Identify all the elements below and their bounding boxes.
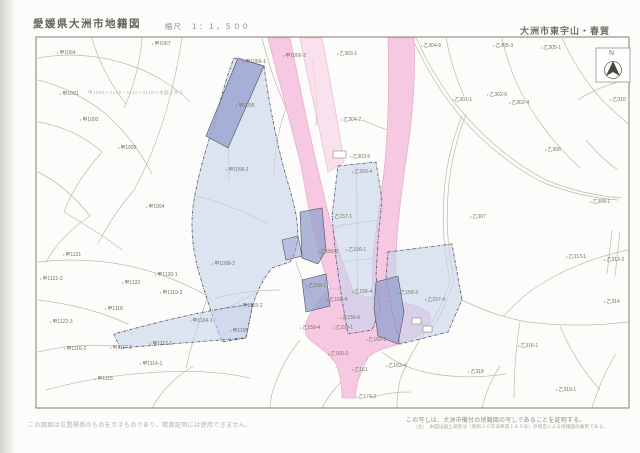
- parcel-label: 甲1094: [146, 204, 165, 210]
- parcel-label: 甲1120-1: [155, 272, 178, 278]
- parcel-label: 甲1116-2: [64, 346, 86, 352]
- north-label: N: [609, 50, 614, 57]
- parcel-label: 甲1121-2: [40, 276, 63, 282]
- blue-parcel-west-arm: [114, 304, 252, 348]
- parcel-label: 乙308-1: [590, 199, 610, 205]
- parcel-label: 乙314: [604, 299, 620, 305]
- parcel-label: 乙163-4: [386, 363, 406, 369]
- parcel-label: 乙156-6: [340, 315, 360, 321]
- disclaimer-text: この図面は位置関係のものを示すものであり、精度証明には使用できません。: [28, 420, 252, 429]
- parcel-label: 乙158-3: [398, 290, 418, 296]
- certification-fine-print: （注） 本図は国土調査法（昭和２６年法律第１８０号）の規定による地籍図の複製であ…: [413, 424, 608, 430]
- parcel-label: 甲1066-2: [283, 53, 306, 59]
- parcel-label: 乙157-4: [425, 297, 445, 303]
- parcel-label: 乙161: [352, 367, 368, 373]
- parcel-label: 乙313-2: [604, 257, 624, 263]
- parcel-label: 乙304-6: [421, 43, 441, 49]
- parcel-label: 乙302-4: [509, 100, 529, 106]
- parcel-label: 乙156-2: [318, 249, 338, 255]
- dark-parcel-center-upper: [300, 208, 326, 264]
- parcel-label: 乙174-2: [356, 394, 376, 400]
- dark-parcel-small: [282, 236, 302, 260]
- parcel-label: 乙316-1: [518, 343, 538, 349]
- parcel-label: 乙156-1: [346, 247, 366, 253]
- parcel-label: 甲1115: [95, 376, 113, 382]
- parcel-label: 甲1117-2: [110, 345, 132, 351]
- parcel-label: 乙159-4: [300, 325, 320, 331]
- parcel-label: 乙306: [545, 147, 561, 153]
- parcel-label: 乙158-1: [306, 283, 326, 289]
- parcel-label: 甲1095: [236, 103, 255, 109]
- parcel-label: 甲1122-3: [50, 319, 73, 325]
- parcel-label: 甲1103-2: [240, 303, 263, 309]
- parcel-label: 乙302-6: [487, 92, 507, 98]
- parcel-label: 乙310: [610, 97, 626, 103]
- parcel-label: 甲1121: [63, 252, 81, 258]
- parcel-label: 甲1091: [60, 91, 79, 97]
- parcel-label: 甲1118: [105, 306, 123, 312]
- parcel-label: 甲1092: [80, 117, 99, 123]
- parcel-label: 甲1117-1: [150, 341, 172, 347]
- parcel-label: 甲1067: [152, 41, 171, 47]
- parcel-label: 甲1104-1: [190, 318, 213, 324]
- parcel-label: 乙157-1: [332, 214, 352, 220]
- parcel-label: 乙313-1: [566, 254, 586, 260]
- parcel-label: 乙159-1: [333, 325, 353, 331]
- dark-parcel-center-lower: [302, 274, 330, 312]
- parcel-label: 甲1105: [230, 328, 248, 334]
- parcel-label: 甲1114-1: [140, 361, 162, 367]
- parcel-label: 乙303-1: [337, 51, 357, 57]
- parcel-label: 乙318: [468, 369, 484, 375]
- parcel-label: 甲1066-1: [243, 59, 266, 65]
- parcel-label: 乙319-1: [556, 387, 576, 393]
- parcel-label: 乙305-3: [493, 43, 513, 49]
- parcel-label: 甲1122: [122, 280, 140, 286]
- parcel-label: 甲1098-2: [212, 261, 235, 267]
- parcel-label: 乙160-1: [366, 337, 386, 343]
- dark-parcel-east-band: [374, 276, 404, 344]
- parcel-label: 甲1096-1: [226, 167, 249, 173]
- parcel-label: 甲1119-3: [160, 290, 182, 296]
- parcel-label: 甲1064: [57, 50, 76, 56]
- parcel-label: 乙304-2: [341, 117, 361, 123]
- parcel-label: 乙303-4: [352, 169, 372, 175]
- parcel-label: 乙158-4: [327, 297, 347, 303]
- parcel-label: 乙303-5: [350, 154, 370, 160]
- parcel-label: 乙305-1: [541, 45, 561, 51]
- cadastral-map-page: 愛媛県大洲市地籍図 縮尺 １：１，５００ 大洲市東宇山・春賀: [0, 0, 640, 453]
- parcel-label: 乙160-3: [328, 351, 348, 357]
- parcel-label: 乙301-1: [452, 97, 472, 103]
- certification-text: この写しは、大洲市備付の地籍図の写しであることを証明する。: [406, 415, 586, 424]
- parcel-label: 乙307: [470, 214, 486, 220]
- map-annotation: 甲1066〜1106・1111〜1118ハ本図ニ存ス: [88, 90, 184, 96]
- cadastral-map: [0, 0, 640, 453]
- parcel-label: 甲1093: [118, 145, 137, 151]
- parcel-label: 乙156-4: [352, 289, 372, 295]
